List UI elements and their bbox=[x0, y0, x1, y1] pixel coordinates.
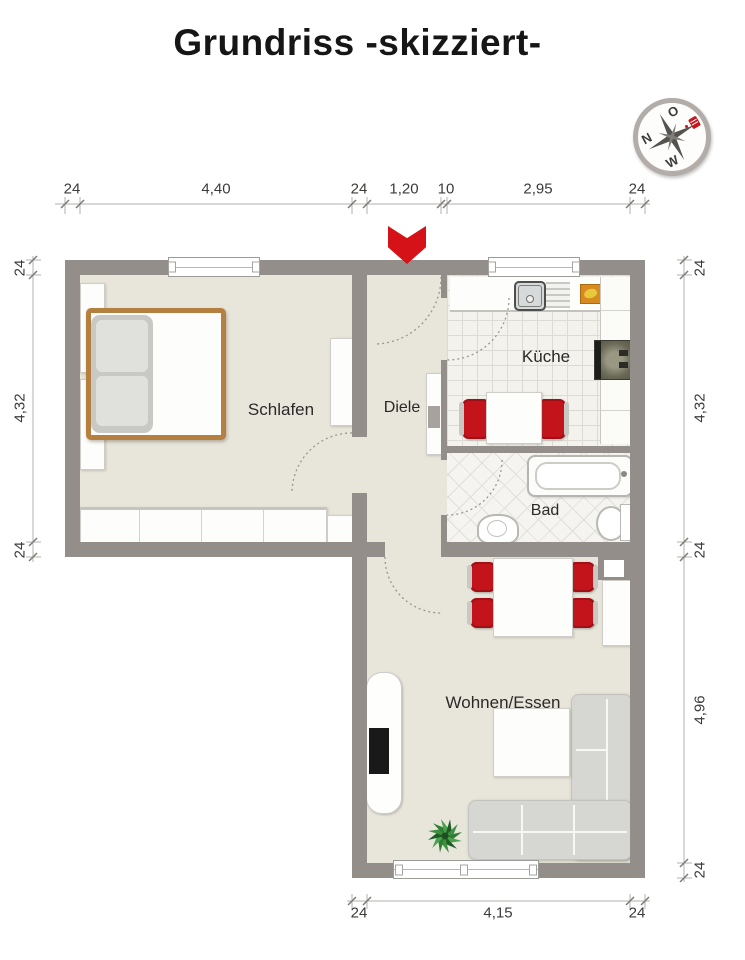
wall-kitchen-bath-divider bbox=[447, 446, 630, 453]
floor-plan-page: Grundriss -skizziert- bbox=[0, 0, 745, 960]
dim-top-6: 24 bbox=[629, 181, 646, 198]
compass-dot bbox=[685, 125, 688, 128]
kitchen-window bbox=[488, 257, 580, 277]
window-post bbox=[572, 262, 580, 273]
cushion-line bbox=[576, 749, 606, 751]
dim-right-2: 24 bbox=[692, 542, 709, 559]
window-post bbox=[168, 262, 176, 273]
living-cabinet bbox=[602, 580, 632, 646]
dim-top-1: 4,40 bbox=[201, 181, 230, 198]
dim-right-1: 4,32 bbox=[692, 393, 709, 422]
kitchen-sink-icon bbox=[514, 281, 546, 311]
bed-icon bbox=[86, 308, 226, 440]
wall-right bbox=[630, 260, 645, 878]
wall-bath-bottom bbox=[441, 542, 630, 557]
dim-top-5: 2,95 bbox=[523, 181, 552, 198]
window-post bbox=[460, 864, 468, 875]
wardrobe-row bbox=[80, 507, 327, 546]
bedroom-window bbox=[168, 257, 260, 277]
wall-kitchen-partition-c bbox=[441, 515, 447, 542]
sink-drainboard bbox=[546, 282, 570, 308]
cushion-line bbox=[473, 831, 627, 833]
chair-armrest bbox=[467, 565, 472, 589]
window-post bbox=[395, 864, 403, 875]
page-title: Grundriss -skizziert- bbox=[0, 22, 715, 64]
hall-cabinet-drawer bbox=[428, 406, 440, 428]
chair-armrest bbox=[593, 601, 598, 625]
chair-armrest bbox=[459, 402, 464, 436]
tv-icon bbox=[369, 728, 389, 774]
dim-left-1: 4,32 bbox=[12, 393, 29, 422]
wall-bedroom-hall-lower bbox=[352, 493, 367, 542]
bathtub-icon bbox=[527, 455, 633, 497]
wall-kitchen-partition-a bbox=[441, 275, 447, 298]
room-label-hall: Diele bbox=[384, 399, 420, 417]
compass-icon: O N W bbox=[633, 98, 711, 176]
divider-line bbox=[601, 310, 631, 311]
coffee-table bbox=[493, 708, 570, 777]
corner-cabinet bbox=[327, 515, 354, 544]
stove-knob bbox=[619, 362, 628, 368]
sink-drain bbox=[526, 295, 534, 303]
fruit bbox=[583, 287, 599, 301]
living-window bbox=[393, 860, 539, 879]
dim-left-0: 24 bbox=[12, 260, 29, 277]
plant-icon bbox=[425, 815, 465, 857]
divider-line bbox=[201, 510, 202, 545]
divider-line bbox=[263, 510, 264, 545]
entrance-arrow-icon bbox=[388, 226, 426, 264]
fruit-board-icon bbox=[580, 284, 602, 304]
washbasin-bowl bbox=[487, 520, 507, 537]
window-post bbox=[488, 262, 496, 273]
stove-panel bbox=[595, 341, 601, 379]
dim-top-4: 10 bbox=[438, 181, 455, 198]
dim-right-0: 24 bbox=[692, 260, 709, 277]
divider-line bbox=[139, 510, 140, 545]
hall-passage-opening bbox=[385, 542, 441, 557]
wall-bedroom-bottom bbox=[65, 542, 385, 557]
washbasin-icon bbox=[477, 514, 519, 545]
divider-line bbox=[601, 410, 631, 411]
chair-armrest bbox=[467, 601, 472, 625]
bedroom-side-unit bbox=[330, 338, 354, 426]
wall-kitchen-partition-b bbox=[441, 360, 447, 460]
dim-top-0: 24 bbox=[64, 181, 81, 198]
room-label-living: Wohnen/Essen bbox=[446, 693, 561, 713]
wall-left bbox=[65, 260, 80, 557]
dim-bottom-1: 4,15 bbox=[483, 905, 512, 922]
chair-armrest bbox=[564, 402, 569, 436]
bathtub-faucet bbox=[621, 471, 627, 477]
cushion-line bbox=[606, 699, 608, 801]
tv-lowboard bbox=[366, 672, 402, 814]
window-post bbox=[529, 864, 537, 875]
wall-bedroom-hall-upper bbox=[352, 275, 367, 437]
kitchen-table bbox=[486, 392, 542, 444]
room-label-bath: Bad bbox=[531, 502, 559, 520]
cushion-line bbox=[573, 805, 575, 855]
room-label-kitchen: Küche bbox=[522, 347, 570, 367]
dim-right-3: 4,96 bbox=[692, 695, 709, 724]
dim-left-2: 24 bbox=[12, 542, 29, 559]
bed-pillow-top bbox=[96, 320, 148, 372]
wall-chimney-block bbox=[598, 557, 630, 580]
window-post bbox=[252, 262, 260, 273]
chimney-inset bbox=[604, 560, 624, 577]
dining-table bbox=[493, 558, 573, 637]
dim-bottom-0: 24 bbox=[351, 905, 368, 922]
bed-pillow-bottom bbox=[96, 376, 148, 426]
bathtub-basin bbox=[535, 462, 621, 490]
sofa-icon bbox=[468, 800, 632, 860]
stove-knob bbox=[619, 350, 628, 356]
dim-right-4: 24 bbox=[692, 862, 709, 879]
dim-bottom-2: 24 bbox=[629, 905, 646, 922]
cushion-line bbox=[521, 805, 523, 855]
dim-top-2: 24 bbox=[351, 181, 368, 198]
dim-top-3: 1,20 bbox=[389, 181, 418, 198]
kitchen-chair-right bbox=[538, 399, 566, 439]
stove-icon bbox=[594, 340, 632, 380]
wall-living-left bbox=[352, 557, 367, 863]
room-label-bedroom: Schlafen bbox=[248, 400, 314, 420]
